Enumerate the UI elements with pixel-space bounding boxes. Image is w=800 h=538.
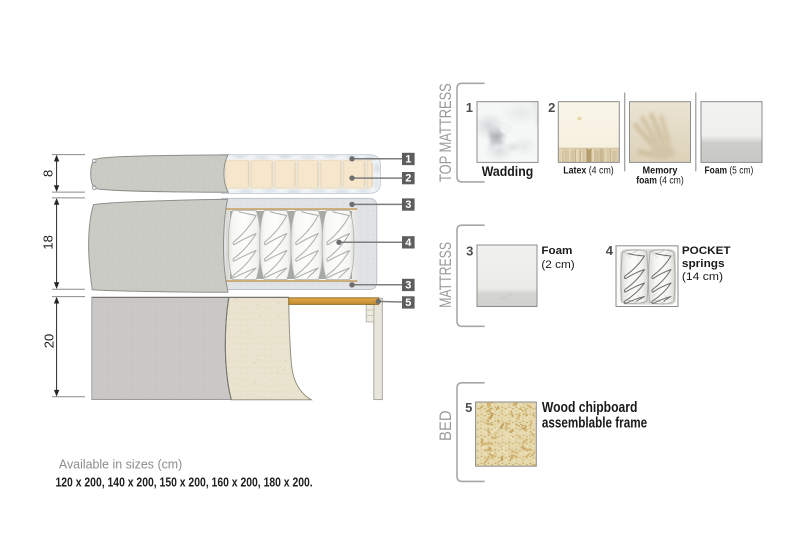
svg-text:5: 5 <box>465 400 472 415</box>
svg-text:3: 3 <box>405 199 411 211</box>
svg-text:Foam (5 cm): Foam (5 cm) <box>705 166 754 177</box>
svg-text:TOP MATTRESS: TOP MATTRESS <box>436 83 455 182</box>
svg-text:Latex (4 cm): Latex (4 cm) <box>563 166 614 177</box>
svg-text:20: 20 <box>41 334 56 348</box>
svg-text:18: 18 <box>40 235 55 249</box>
svg-text:Available in sizes (cm): Available in sizes (cm) <box>59 456 182 471</box>
svg-text:BED: BED <box>436 410 455 441</box>
svg-text:foam (4 cm): foam (4 cm) <box>636 175 684 187</box>
svg-text:(14 cm): (14 cm) <box>682 271 723 283</box>
svg-text:2: 2 <box>405 173 411 185</box>
svg-text:Foam: Foam <box>541 245 572 257</box>
svg-text:springs: springs <box>682 258 725 270</box>
svg-text:4: 4 <box>405 237 412 249</box>
svg-text:3: 3 <box>466 243 473 258</box>
svg-text:120 x 200, 140 x 200, 150 x 20: 120 x 200, 140 x 200, 150 x 200, 160 x 2… <box>56 475 313 489</box>
svg-text:MATTRESS: MATTRESS <box>436 242 455 308</box>
svg-text:5: 5 <box>405 297 411 309</box>
svg-text:Wadding: Wadding <box>482 164 534 179</box>
svg-text:3: 3 <box>405 279 411 291</box>
svg-text:8: 8 <box>40 170 55 177</box>
svg-text:1: 1 <box>405 153 411 165</box>
svg-text:(2 cm): (2 cm) <box>541 259 575 271</box>
svg-text:1: 1 <box>466 100 473 115</box>
svg-text:2: 2 <box>548 100 555 115</box>
svg-text:4: 4 <box>606 243 614 258</box>
svg-text:POCKET: POCKET <box>682 245 731 257</box>
svg-text:assemblable frame: assemblable frame <box>542 414 647 431</box>
